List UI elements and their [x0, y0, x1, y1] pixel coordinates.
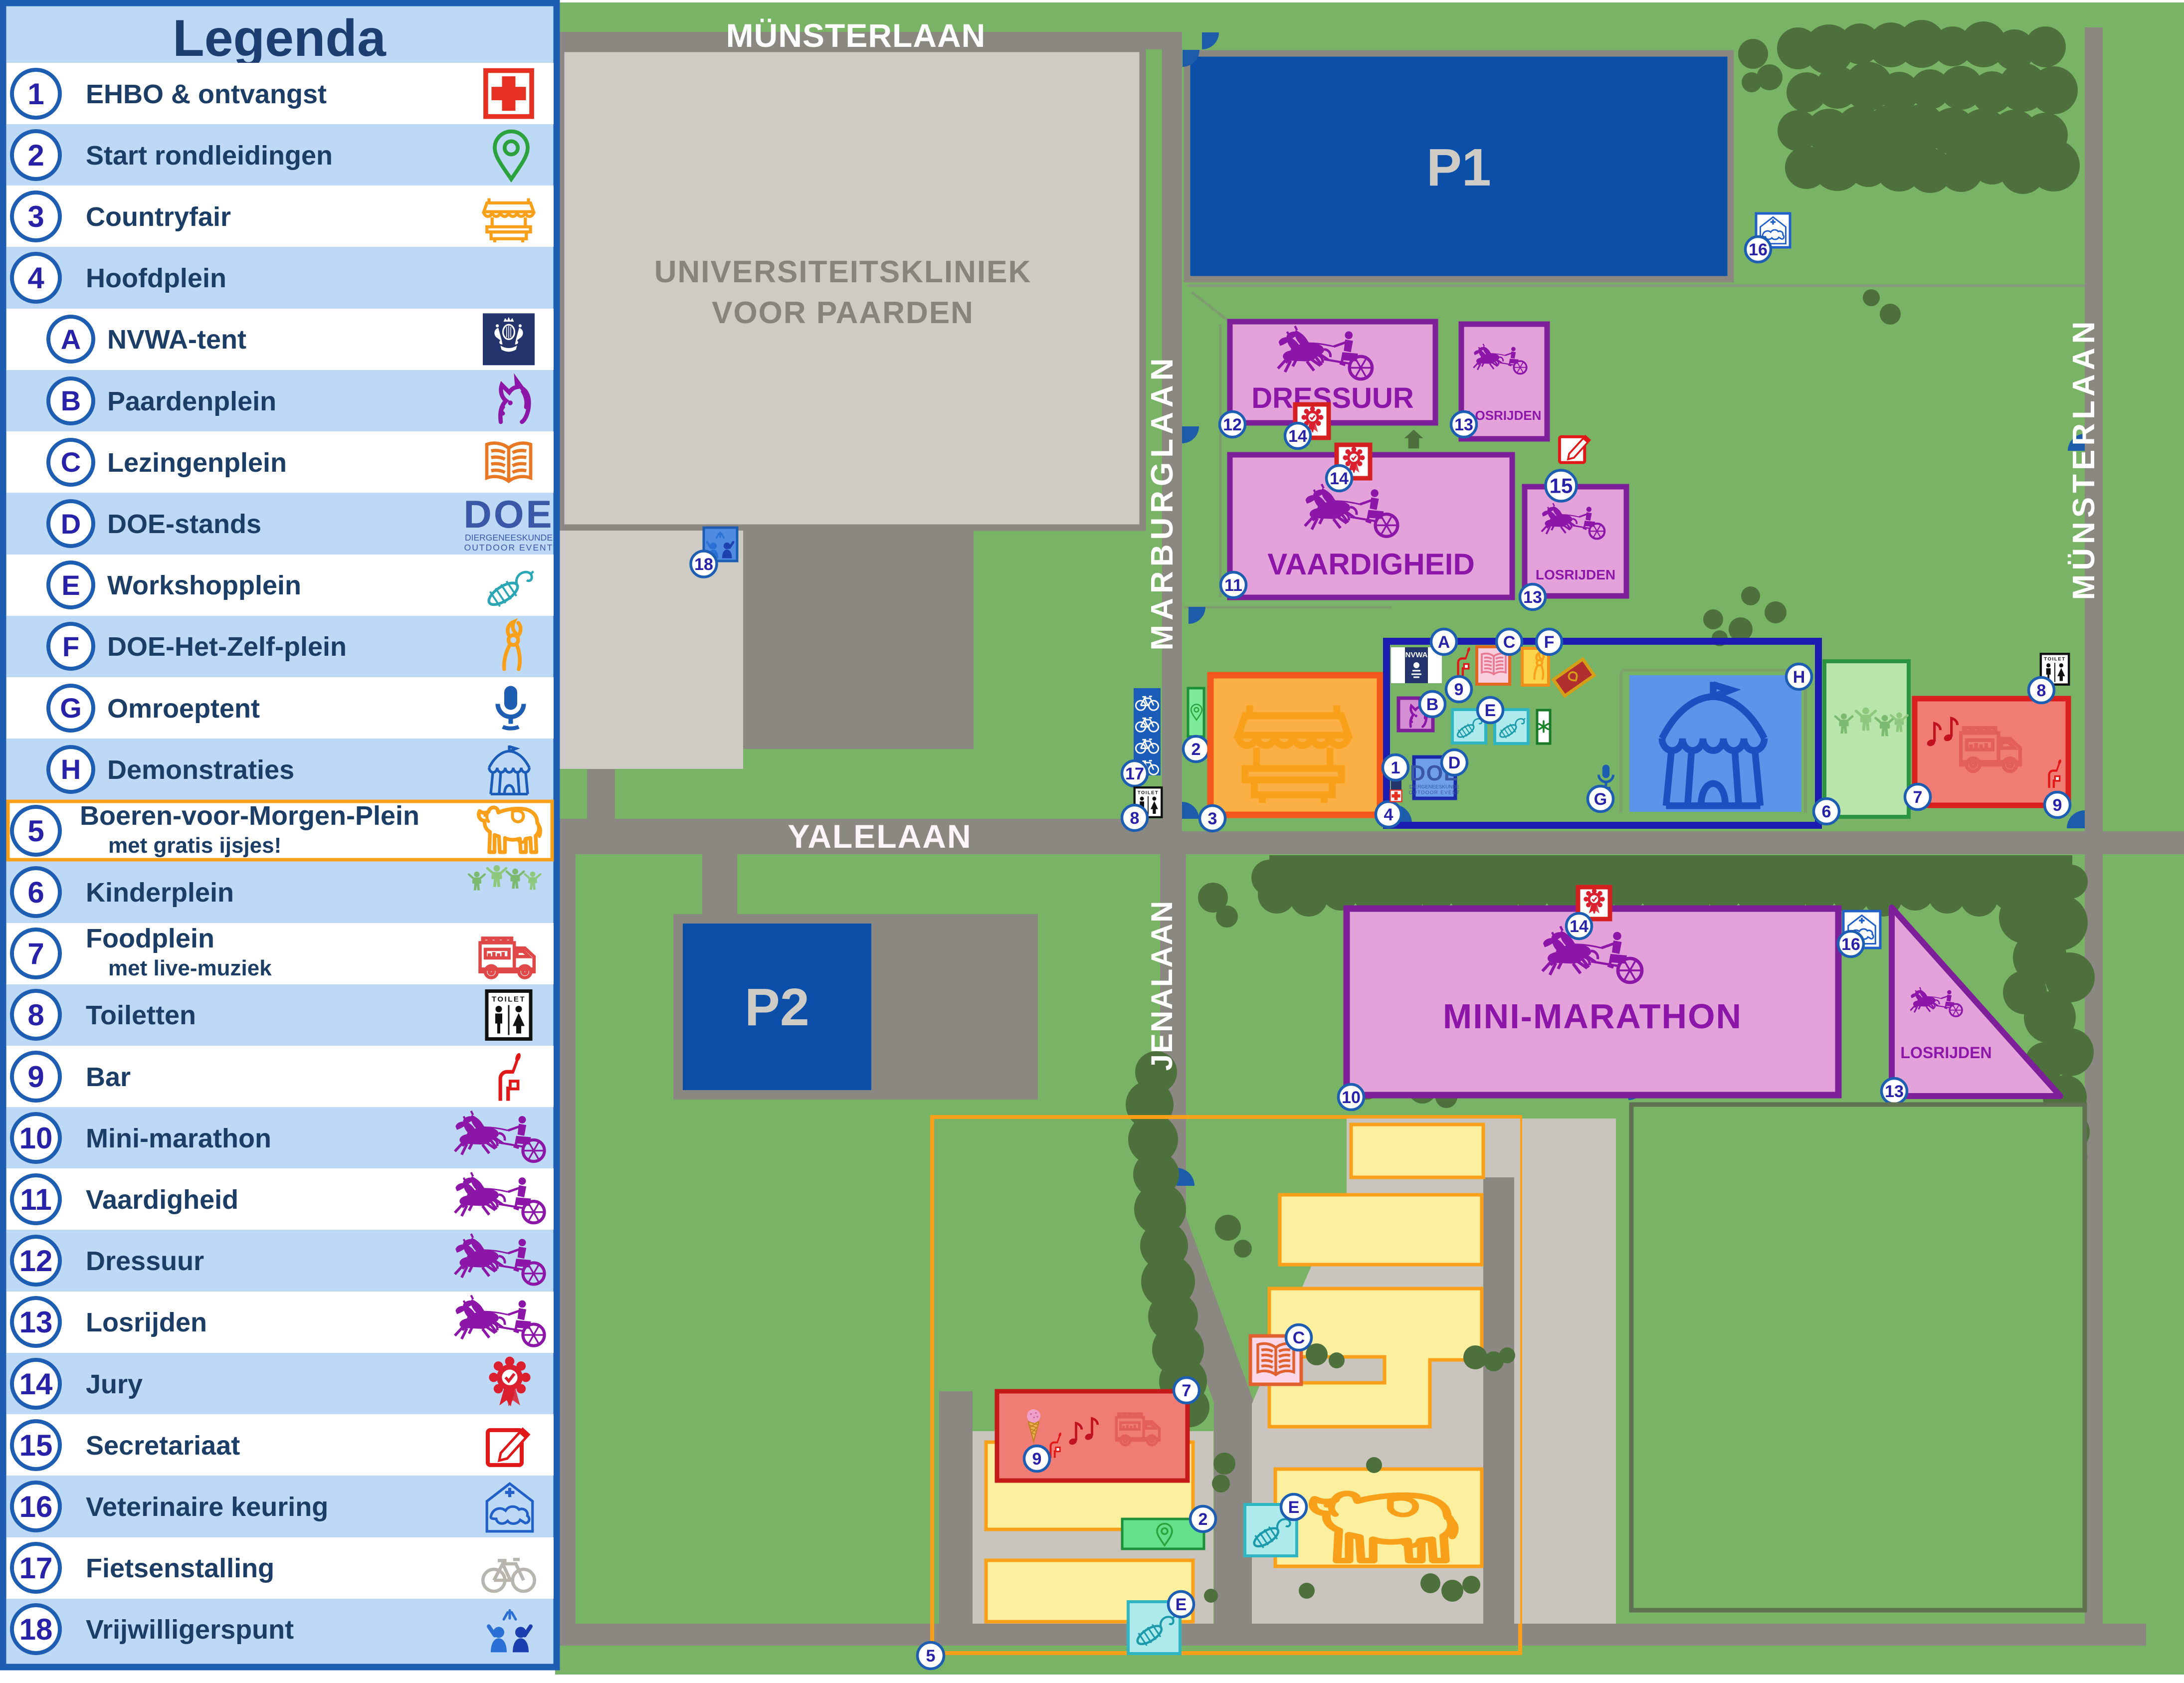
svg-text:met gratis ijsjes!: met gratis ijsjes!	[108, 833, 281, 858]
svg-text:Hoofdplein: Hoofdplein	[86, 263, 226, 293]
svg-text:16: 16	[19, 1490, 53, 1523]
svg-text:13: 13	[19, 1306, 53, 1339]
svg-text:MINI-MARATHON: MINI-MARATHON	[1443, 997, 1742, 1036]
svg-text:8: 8	[1130, 809, 1140, 828]
svg-text:DOE-Het-Zelf-plein: DOE-Het-Zelf-plein	[107, 632, 347, 662]
svg-text:DOE-stands: DOE-stands	[107, 509, 261, 539]
svg-text:2: 2	[27, 139, 44, 172]
svg-text:G: G	[1594, 790, 1607, 809]
svg-text:UNIVERSITEITSKLINIEK: UNIVERSITEITSKLINIEK	[654, 255, 1032, 289]
svg-text:E: E	[1288, 1498, 1300, 1517]
svg-text:DOE: DOE	[463, 492, 554, 536]
svg-text:D: D	[61, 508, 81, 540]
svg-text:3: 3	[1208, 809, 1217, 828]
svg-text:NVWA: NVWA	[1405, 651, 1428, 659]
svg-text:LOSRIJDEN: LOSRIJDEN	[1536, 567, 1615, 582]
svg-text:3: 3	[27, 200, 44, 233]
svg-text:8: 8	[27, 998, 44, 1032]
svg-text:E: E	[1176, 1595, 1187, 1614]
svg-text:13: 13	[1454, 415, 1473, 434]
svg-text:16: 16	[1841, 935, 1860, 954]
svg-text:14: 14	[1570, 917, 1588, 936]
svg-text:12: 12	[19, 1244, 53, 1278]
svg-text:OUTDOOR EVENT: OUTDOOR EVENT	[464, 543, 554, 553]
svg-text:LOSRIJDEN: LOSRIJDEN	[1900, 1044, 1991, 1062]
svg-text:Omroeptent: Omroeptent	[107, 694, 260, 724]
svg-text:Kinderplein: Kinderplein	[86, 878, 234, 908]
svg-text:B: B	[1426, 695, 1439, 714]
svg-text:15: 15	[1550, 474, 1573, 498]
svg-text:5: 5	[926, 1647, 936, 1666]
svg-text:H: H	[61, 753, 81, 785]
svg-text:6: 6	[27, 876, 44, 909]
svg-text:7: 7	[1182, 1381, 1191, 1400]
svg-text:Paardenplein: Paardenplein	[107, 386, 276, 416]
svg-text:2: 2	[1198, 1510, 1208, 1529]
svg-text:Start rondleidingen: Start rondleidingen	[86, 141, 333, 171]
svg-text:Dressuur: Dressuur	[86, 1246, 204, 1276]
svg-text:Demonstraties: Demonstraties	[107, 755, 294, 785]
svg-text:18: 18	[19, 1613, 53, 1646]
svg-text:Jury: Jury	[86, 1369, 143, 1399]
svg-text:Fietsenstalling: Fietsenstalling	[86, 1553, 274, 1583]
svg-text:4: 4	[1384, 805, 1393, 824]
svg-text:17: 17	[19, 1551, 53, 1585]
svg-text:9: 9	[2053, 796, 2062, 815]
svg-text:Boeren-voor-Morgen-Plein: Boeren-voor-Morgen-Plein	[80, 801, 419, 831]
svg-text:A: A	[1438, 633, 1450, 652]
svg-text:E: E	[61, 569, 80, 601]
svg-text:5: 5	[27, 814, 44, 848]
svg-text:P1: P1	[1426, 138, 1491, 197]
svg-text:Lezingenplein: Lezingenplein	[107, 448, 287, 478]
svg-text:C: C	[61, 446, 81, 478]
svg-text:MÜNSTERLAAN: MÜNSTERLAAN	[726, 17, 986, 54]
svg-text:Legenda: Legenda	[173, 9, 387, 67]
svg-text:Workshopplein: Workshopplein	[107, 570, 301, 600]
svg-text:18: 18	[694, 555, 713, 574]
svg-text:Secretariaat: Secretariaat	[86, 1431, 240, 1461]
svg-text:EHBO & ontvangst: EHBO & ontvangst	[86, 79, 327, 109]
svg-text:1: 1	[27, 77, 44, 111]
svg-text:2: 2	[1191, 740, 1201, 759]
svg-text:Veterinaire keuring: Veterinaire keuring	[86, 1492, 328, 1522]
svg-text:G: G	[60, 692, 82, 724]
svg-text:E: E	[1485, 701, 1496, 720]
svg-text:6: 6	[1822, 802, 1831, 821]
svg-text:13: 13	[1885, 1082, 1904, 1101]
svg-text:JENALAAN: JENALAAN	[1145, 900, 1179, 1071]
svg-text:9: 9	[27, 1060, 44, 1094]
svg-text:VOOR PAARDEN: VOOR PAARDEN	[712, 296, 974, 330]
svg-text:MARBURGLAAN: MARBURGLAAN	[1145, 354, 1180, 651]
svg-text:Vrijwilligerspunt: Vrijwilligerspunt	[86, 1615, 294, 1645]
svg-text:met live-muziek: met live-muziek	[108, 956, 272, 980]
svg-text:1: 1	[1391, 758, 1400, 777]
svg-text:DRESSUUR: DRESSUUR	[1251, 382, 1414, 414]
svg-text:Foodplein: Foodplein	[86, 924, 214, 953]
svg-text:8: 8	[2037, 681, 2046, 700]
svg-text:7: 7	[27, 937, 44, 970]
svg-text:B: B	[61, 385, 81, 416]
svg-text:MÜNSTERLAAN: MÜNSTERLAAN	[2067, 318, 2101, 600]
svg-text:9: 9	[1032, 1450, 1042, 1469]
svg-text:YALELAAN: YALELAAN	[788, 818, 972, 855]
svg-text:11: 11	[20, 1183, 51, 1216]
svg-text:15: 15	[19, 1429, 53, 1462]
svg-text:C: C	[1293, 1328, 1305, 1347]
svg-text:C: C	[1503, 633, 1516, 652]
svg-text:12: 12	[1223, 415, 1242, 434]
svg-text:14: 14	[1330, 469, 1349, 488]
svg-text:Toiletten: Toiletten	[86, 1000, 196, 1030]
svg-text:VAARDIGHEID: VAARDIGHEID	[1267, 548, 1475, 581]
svg-text:Mini-marathon: Mini-marathon	[86, 1123, 271, 1153]
svg-text:17: 17	[1125, 764, 1144, 783]
svg-text:F: F	[62, 631, 79, 662]
svg-text:A: A	[61, 324, 81, 355]
svg-text:D: D	[1448, 753, 1461, 772]
svg-text:13: 13	[1523, 588, 1542, 607]
svg-text:Bar: Bar	[86, 1062, 131, 1092]
svg-text:14: 14	[19, 1367, 53, 1401]
svg-text:7: 7	[1913, 788, 1923, 807]
svg-text:11: 11	[1224, 576, 1242, 595]
svg-text:LOSRIJDEN: LOSRIJDEN	[1467, 408, 1542, 423]
svg-text:Losrijden: Losrijden	[86, 1308, 207, 1337]
svg-text:NVWA-tent: NVWA-tent	[107, 325, 246, 355]
svg-text:10: 10	[19, 1122, 53, 1155]
svg-text:DIERGENEESKUNDE: DIERGENEESKUNDE	[465, 533, 553, 543]
svg-text:F: F	[1544, 633, 1555, 652]
svg-text:Countryfair: Countryfair	[86, 202, 231, 232]
svg-text:16: 16	[1749, 240, 1768, 259]
svg-text:P2: P2	[745, 978, 809, 1037]
svg-text:4: 4	[27, 261, 44, 295]
svg-text:Vaardigheid: Vaardigheid	[86, 1185, 238, 1215]
svg-text:14: 14	[1288, 427, 1307, 446]
svg-text:H: H	[1793, 668, 1805, 687]
svg-text:10: 10	[1342, 1088, 1361, 1107]
svg-text:9: 9	[1454, 680, 1464, 699]
